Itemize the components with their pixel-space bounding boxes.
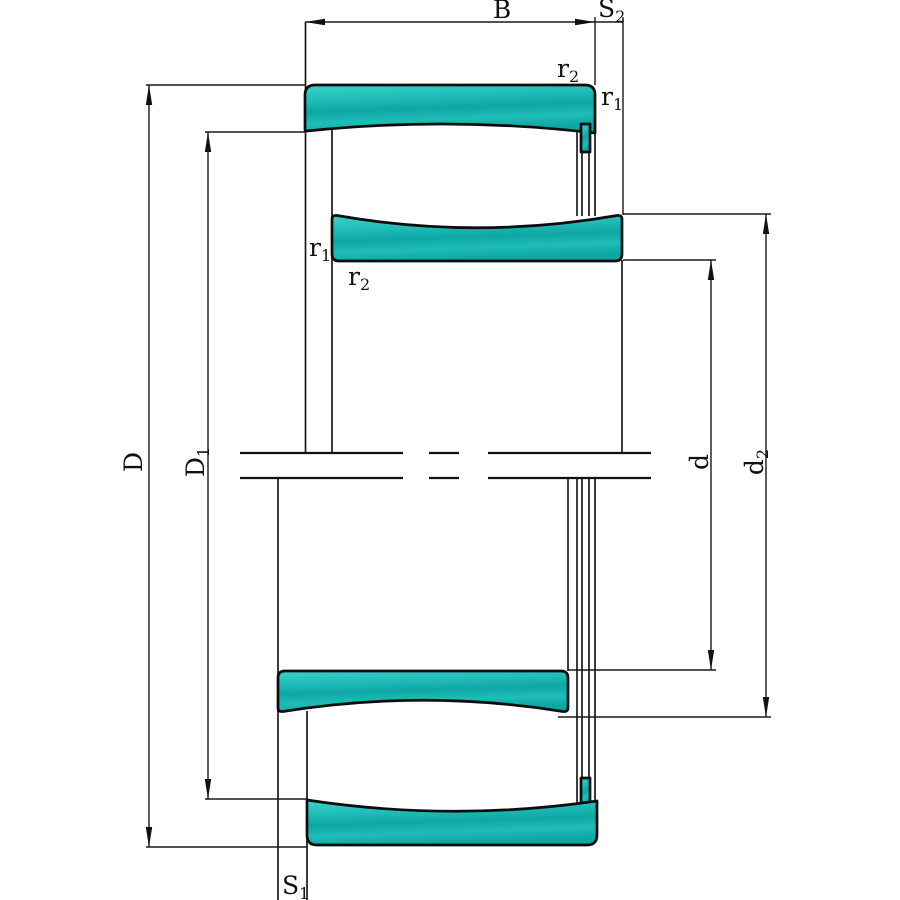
label-r1-inner: r1 xyxy=(309,233,331,265)
B-arrow-left xyxy=(305,19,325,25)
d2-arrow-top xyxy=(763,214,769,234)
d2-arrow-bottom xyxy=(763,697,769,717)
d-arrow-bottom xyxy=(708,650,714,670)
structure-lines xyxy=(278,22,622,900)
upper-outer-ring xyxy=(305,85,595,133)
label-B: B xyxy=(493,0,511,24)
label-r2-outer: r2 xyxy=(557,54,579,86)
label-r2-inner: r2 xyxy=(348,262,370,294)
upper-inner-ring xyxy=(332,215,622,261)
lower-inner-ring xyxy=(278,671,568,712)
label-S1: S1 xyxy=(282,871,309,900)
shaft-band xyxy=(240,453,651,478)
bearing-engineering-drawing: B S2 r2 r1 r1 r2 D D1 d d2 S1 xyxy=(0,0,900,900)
label-d2: d2 xyxy=(740,449,772,475)
lower-bearing xyxy=(278,671,597,845)
label-D1: D1 xyxy=(181,447,213,477)
upper-retainer-bar xyxy=(581,124,590,152)
extension-lines xyxy=(146,17,771,847)
D-arrow-top xyxy=(146,85,152,105)
B-arrow-right xyxy=(575,19,595,25)
label-r1-outer: r1 xyxy=(601,82,623,114)
D1-arrow-top xyxy=(205,132,211,152)
dimension-labels: B S2 r2 r1 r1 r2 D D1 d d2 S1 xyxy=(119,0,772,900)
label-D: D xyxy=(119,452,148,472)
label-d: d xyxy=(685,454,714,470)
dimension-lines xyxy=(146,19,769,847)
d-arrow-top xyxy=(708,260,714,280)
lower-outer-ring xyxy=(307,800,597,845)
D-arrow-bottom xyxy=(146,827,152,847)
D1-arrow-bottom xyxy=(205,779,211,799)
drawing-canvas: B S2 r2 r1 r1 r2 D D1 d d2 S1 xyxy=(0,0,900,900)
upper-bearing xyxy=(305,85,622,261)
label-S2: S2 xyxy=(598,0,625,26)
